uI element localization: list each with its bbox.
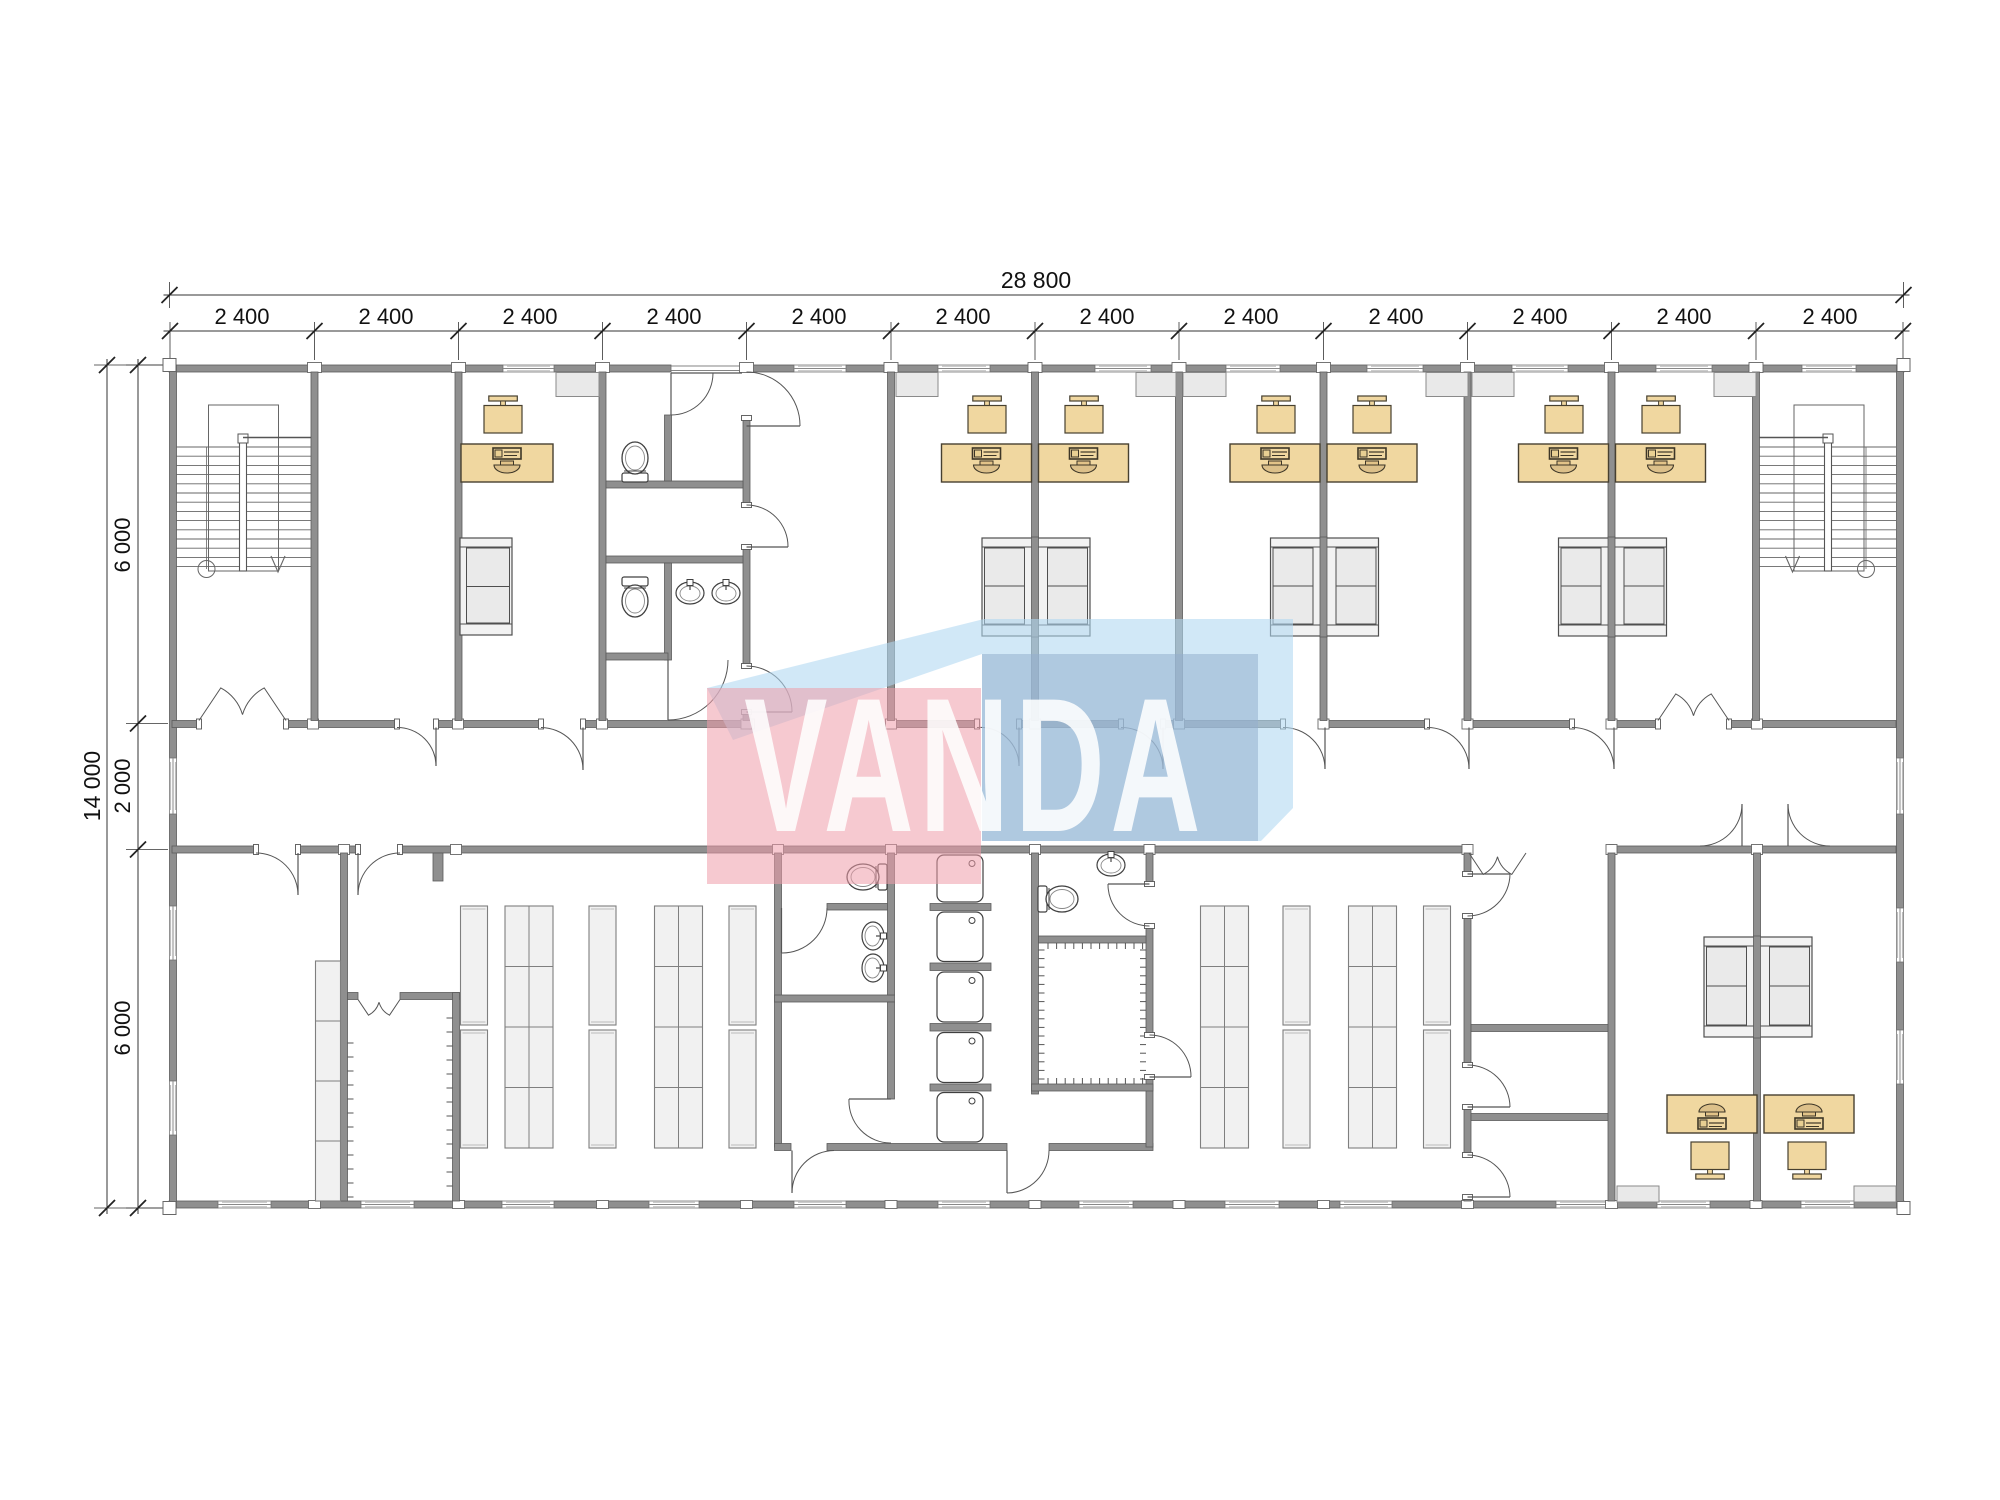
svg-text:2 400: 2 400: [1079, 304, 1134, 329]
svg-text:28 800: 28 800: [1001, 267, 1071, 293]
svg-text:14 000: 14 000: [79, 751, 105, 821]
svg-text:2 400: 2 400: [1368, 304, 1423, 329]
svg-text:2 400: 2 400: [214, 304, 269, 329]
svg-text:6 000: 6 000: [110, 1000, 135, 1055]
svg-text:VANDA: VANDA: [744, 659, 1206, 872]
svg-text:2 400: 2 400: [1802, 304, 1857, 329]
svg-text:2 400: 2 400: [1656, 304, 1711, 329]
svg-text:2 400: 2 400: [1223, 304, 1278, 329]
svg-text:6 000: 6 000: [110, 517, 135, 572]
svg-text:2 000: 2 000: [110, 758, 135, 813]
svg-text:2 400: 2 400: [935, 304, 990, 329]
svg-text:2 400: 2 400: [791, 304, 846, 329]
svg-text:2 400: 2 400: [646, 304, 701, 329]
svg-text:2 400: 2 400: [358, 304, 413, 329]
svg-text:2 400: 2 400: [502, 304, 557, 329]
svg-text:2 400: 2 400: [1512, 304, 1567, 329]
